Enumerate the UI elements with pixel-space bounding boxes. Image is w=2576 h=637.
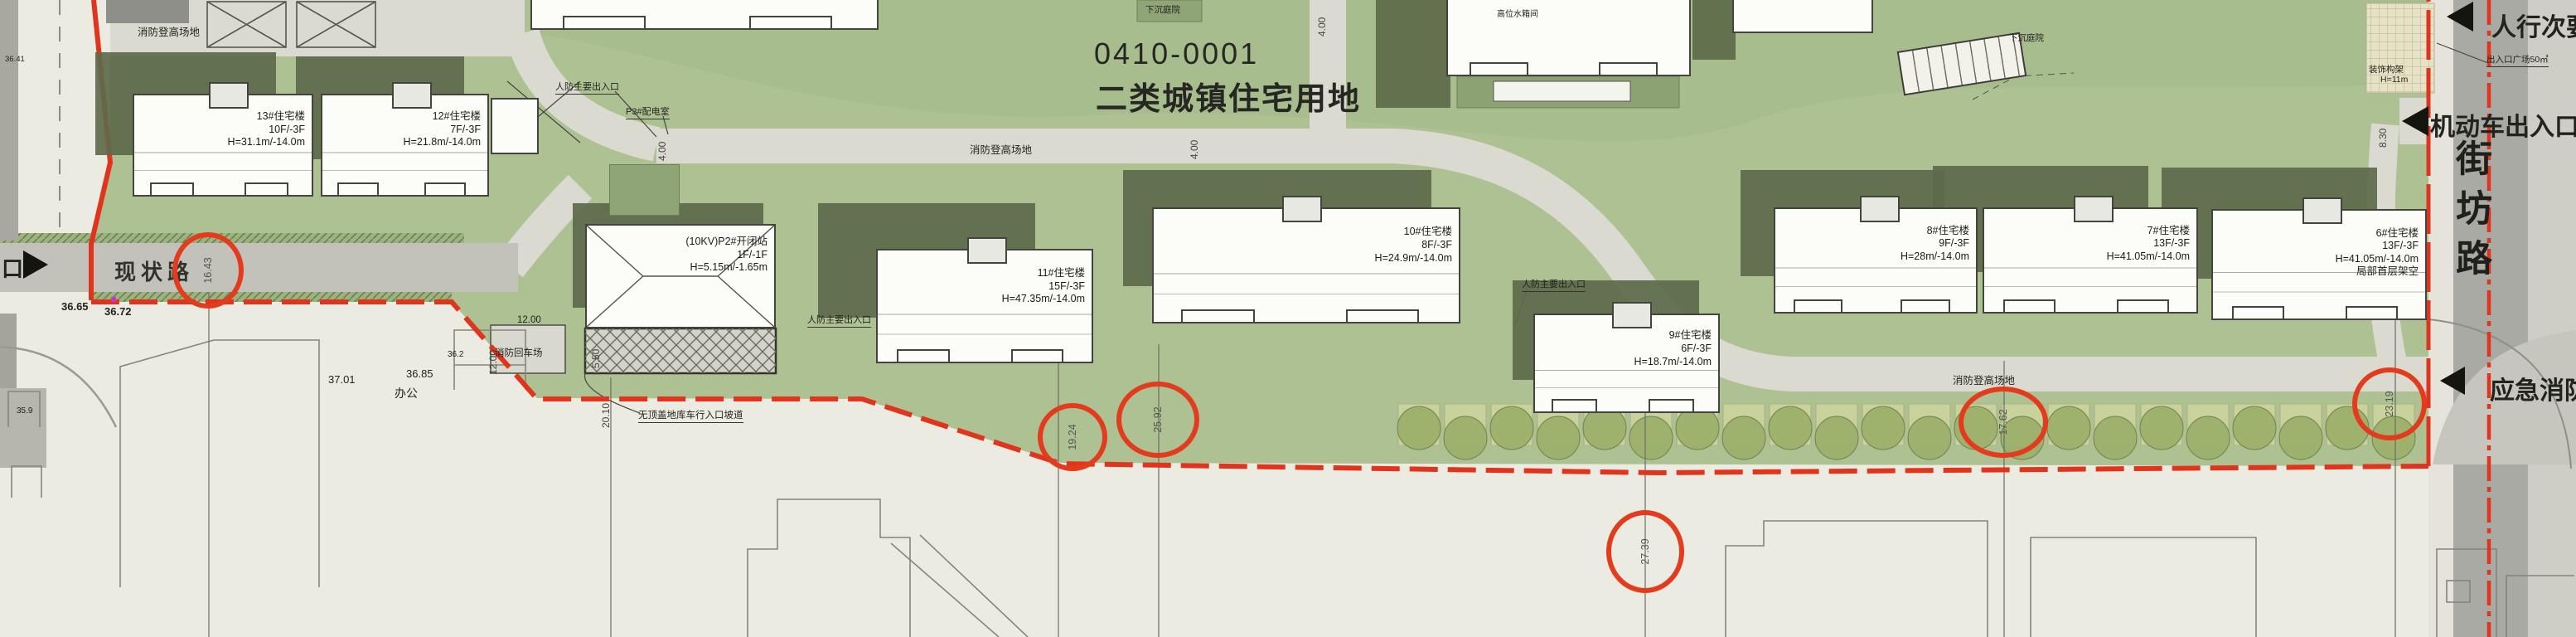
stair-core-icon bbox=[209, 82, 249, 109]
building-8: 8#住宅楼9F/-3FH=28m/-14.0m bbox=[1774, 207, 1978, 314]
sunken-courtyard-label: 下沉庭院 bbox=[2009, 32, 2044, 44]
dimension-label: 12.00 bbox=[487, 350, 499, 375]
deco-frame-height-label: H=11m bbox=[2380, 75, 2408, 85]
circled-dimension: 27.39 bbox=[1606, 510, 1684, 593]
building-shadow bbox=[1376, 0, 1450, 108]
building-12: 12#住宅楼7F/-3FH=21.8m/-14.0m bbox=[321, 94, 489, 197]
stair-core-icon bbox=[2074, 196, 2114, 222]
dimension-label: 20.10 bbox=[600, 403, 612, 428]
dimension-label: 4.00 bbox=[1316, 17, 1328, 36]
building-water-tank-host bbox=[1446, 0, 1691, 76]
civil-defense-entrance-label: 人防主要出入口 bbox=[807, 313, 871, 328]
building-label: (10KV)P2#开闭站1F/-1FH=5.15m/-1.65m bbox=[685, 236, 767, 275]
pedestrian-entrance-label: 人行次要 bbox=[2491, 7, 2576, 43]
building-7: 7#住宅楼13F/-3FH=41.05m/-14.0m bbox=[1983, 207, 2198, 314]
building-9: 9#住宅楼6F/-3FH=18.7m/-14.0m bbox=[1533, 314, 1720, 413]
building-top-fragment bbox=[530, 0, 879, 30]
building-substation-small bbox=[491, 98, 539, 154]
stair-core-icon bbox=[1282, 196, 1322, 222]
land-parcel-code: 0410-0001 bbox=[1094, 36, 1259, 71]
circled-dimension: 19.24 bbox=[1038, 403, 1107, 471]
water-tank-room-label: 高位水箱间 bbox=[1497, 7, 1538, 19]
civil-defense-entrance-label: 人防主要出入口 bbox=[1522, 277, 1586, 292]
arrow-right-icon bbox=[23, 250, 48, 279]
entrance-plaza-note: 出入口广场50㎡ bbox=[2486, 53, 2549, 67]
dimension-label: 5.50 bbox=[590, 349, 602, 368]
circled-dimension: 23.19 bbox=[2352, 367, 2427, 440]
building-label: 12#住宅楼7F/-3FH=21.8m/-14.0m bbox=[404, 110, 481, 149]
land-use-title: 二类城镇住宅用地 bbox=[1096, 73, 1361, 119]
building-label: 9#住宅楼6F/-3FH=18.7m/-14.0m bbox=[1634, 329, 1712, 368]
sunken-courtyard bbox=[609, 164, 680, 216]
building-label: 7#住宅楼13F/-3FH=41.05m/-14.0m bbox=[2107, 225, 2190, 264]
spot-elevation: 36.65 bbox=[61, 300, 89, 313]
building-6: 6#住宅楼13F/-3FH=41.05m/-14.0m局部首层架空 bbox=[2211, 209, 2427, 320]
dimension-label: 4.00 bbox=[656, 142, 668, 161]
sunken-courtyard-label: 下沉庭院 bbox=[1145, 3, 1180, 16]
building-label: 8#住宅楼9F/-3FH=28m/-14.0m bbox=[1901, 225, 1969, 264]
building-label: 13#住宅楼10F/-3FH=31.1m/-14.0m bbox=[228, 110, 305, 149]
dimension-label: 8.30 bbox=[2377, 129, 2389, 148]
arrow-left-icon bbox=[2447, 2, 2473, 32]
stair-core-icon bbox=[2302, 197, 2342, 224]
arrow-left-icon bbox=[2402, 106, 2428, 136]
arrow-left-icon bbox=[2440, 367, 2465, 395]
spot-elevation: 35.9 bbox=[17, 406, 32, 416]
fire-lane-label: 消防登高场地 bbox=[138, 23, 200, 39]
spot-elevation: 36.41 bbox=[5, 55, 25, 64]
spot-elevation: 36.85 bbox=[406, 367, 433, 380]
civil-defense-entrance-label: 人防主要出入口 bbox=[555, 80, 619, 95]
motor-entrance-label: 机动车出入口 bbox=[2430, 106, 2576, 143]
stair-core-icon bbox=[392, 82, 432, 109]
spot-elevation: 37.01 bbox=[328, 373, 356, 386]
garage-ramp-label: 无顶盖地库车行入口坡道 bbox=[638, 408, 743, 423]
spot-elevation: 36.72 bbox=[104, 305, 132, 318]
building-shadow bbox=[1692, 0, 1736, 60]
circled-dimension: 16.43 bbox=[172, 232, 244, 309]
fire-turnaround-label: 消防回车场 bbox=[495, 346, 543, 359]
building-label: 6#住宅楼13F/-3FH=41.05m/-14.0m局部首层架空 bbox=[2336, 227, 2419, 280]
circled-dimension: 17.62 bbox=[1959, 387, 2048, 458]
building-10kv-switch-station: (10KV)P2#开闭站1F/-1FH=5.15m/-1.65m bbox=[585, 224, 776, 328]
fire-lane-label: 消防登高场地 bbox=[1953, 372, 2015, 387]
deco-frame-label: 装饰构架 bbox=[2369, 63, 2404, 75]
spot-elevation: 36.2 bbox=[448, 350, 463, 359]
site-plan-canvas: 13#住宅楼10F/-3FH=31.1m/-14.0m 12#住宅楼7F/-3F… bbox=[0, 0, 2576, 637]
building-13: 13#住宅楼10F/-3FH=31.1m/-14.0m bbox=[133, 94, 313, 197]
circled-dimension: 25.92 bbox=[1116, 382, 1199, 458]
survey-point-marker bbox=[111, 297, 116, 302]
stair-core-icon bbox=[1860, 196, 1900, 222]
existing-road bbox=[0, 233, 518, 302]
building-label: 11#住宅楼15F/-3FH=47.35m/-14.0m bbox=[1002, 267, 1085, 306]
left-entrance-partial-label: 口 bbox=[2, 252, 23, 283]
building-label: 10#住宅楼8F/-3FH=24.9m/-14.0m bbox=[1375, 226, 1452, 265]
building-10: 10#住宅楼8F/-3FH=24.9m/-14.0m bbox=[1152, 207, 1460, 323]
fang-road-label: 街坊路 bbox=[2443, 139, 2496, 289]
dimension-label: 4.00 bbox=[1189, 140, 1200, 159]
office-label: 办公 bbox=[395, 385, 418, 401]
emergency-fire-label: 应急消防 bbox=[2490, 370, 2576, 406]
fire-lane-label: 消防登高场地 bbox=[970, 141, 1032, 157]
building-top-fragment bbox=[1732, 0, 1873, 33]
building-11: 11#住宅楼15F/-3FH=47.35m/-14.0m bbox=[876, 249, 1093, 363]
stair-core-icon bbox=[1612, 302, 1652, 328]
dimension-label: 12.00 bbox=[517, 315, 541, 325]
stair-core-icon bbox=[967, 237, 1007, 264]
power-distribution-room-label: P3#配电室 bbox=[626, 105, 670, 119]
